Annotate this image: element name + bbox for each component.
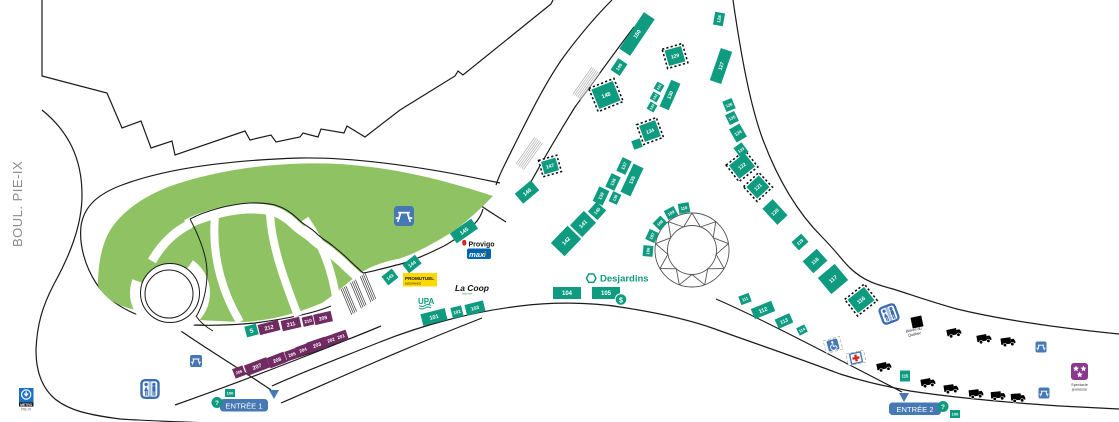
svg-text:METRO: METRO <box>20 403 33 407</box>
svg-text:105: 105 <box>601 291 612 297</box>
svg-text:$: $ <box>619 297 623 304</box>
svg-text:104: 104 <box>562 291 573 297</box>
svg-text:100: 100 <box>952 411 959 416</box>
svg-text:BOUL. PIE-IX: BOUL. PIE-IX <box>10 161 25 247</box>
svg-text:max: max <box>469 250 485 259</box>
svg-text:100: 100 <box>227 390 234 395</box>
svg-text:ASSURANCE: ASSURANCE <box>405 282 421 286</box>
svg-text:?: ? <box>941 404 945 411</box>
svg-text:jeunesse: jeunesse <box>1071 388 1087 392</box>
svg-text:ENTRÉE 1: ENTRÉE 1 <box>225 401 262 410</box>
svg-text:106: 106 <box>645 247 651 255</box>
svg-text:Spectacle: Spectacle <box>1071 383 1088 387</box>
svg-text:Provigo: Provigo <box>469 241 495 248</box>
svg-text:fédérée: fédérée <box>462 292 473 296</box>
svg-text:PROMUTUEL: PROMUTUEL <box>405 276 434 281</box>
svg-text:PIE-IX: PIE-IX <box>21 408 32 412</box>
svg-text:?: ? <box>215 400 219 407</box>
svg-text:Desjardins: Desjardins <box>600 274 649 285</box>
svg-text:ENTRÉE 2: ENTRÉE 2 <box>896 405 933 414</box>
svg-text:115: 115 <box>902 374 909 379</box>
